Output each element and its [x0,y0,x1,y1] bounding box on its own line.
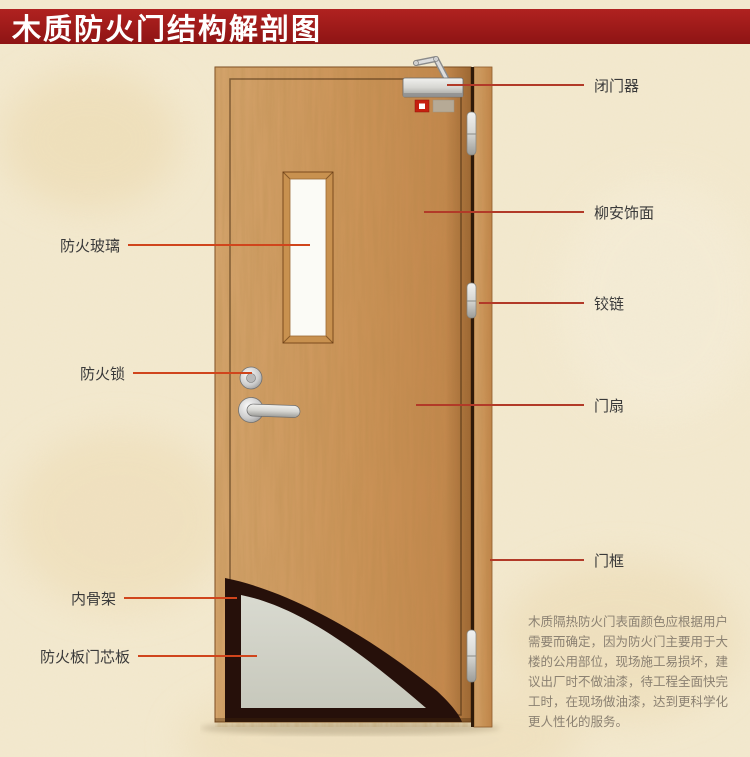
label-inner-skeleton-text: 内骨架 [71,588,116,609]
leader-line-door-frame [490,559,584,561]
label-door-frame: 门框 [490,551,624,569]
glass-window [283,172,333,343]
label-door-closer: 闭门器 [447,76,639,94]
label-fire-glass: 防火玻璃 [60,236,310,254]
hinge-top [467,112,476,155]
fire-glass-pane [290,179,326,336]
description-paragraph: 木质隔热防火门表面颜色应根据用户 需要而确定，因为防火门主要用于大 楼的公用部位… [528,612,746,732]
label-lauan-veneer-text: 柳安饰面 [594,202,654,223]
description-line: 议出厂时不做油漆，待工程全面快完 [528,672,746,692]
label-fire-board-core-text: 防火板门芯板 [40,646,130,667]
description-line: 木质隔热防火门表面颜色应根据用户 [528,612,746,632]
label-door-leaf-text: 门扇 [594,395,624,416]
gray-patch [433,100,454,112]
description-line: 工时，在现场做油漆，达到更科学化 [528,692,746,712]
page-title: 木质防火门结构解剖图 [12,6,322,48]
label-door-frame-text: 门框 [594,550,624,571]
label-fire-board-core: 防火板门芯板 [40,647,257,665]
label-fire-lock: 防火锁 [80,364,252,382]
leader-line-fire-board-core [138,655,257,657]
edge-shading [445,67,471,722]
leader-line-inner-skeleton [124,597,237,599]
leader-line-fire-glass [128,244,310,246]
label-door-closer-text: 闭门器 [594,75,639,96]
description-line: 楼的公用部位，现场施工易损坏，建 [528,652,746,672]
title-bar: 木质防火门结构解剖图 [0,9,750,44]
description-line: 需要而确定，因为防火门主要用于大 [528,632,746,652]
door-bottom-edge [215,718,471,722]
leader-line-door-closer [447,84,584,86]
red-badge [415,100,429,112]
label-hinge: 铰链 [479,294,624,312]
label-fire-glass-text: 防火玻璃 [60,235,120,256]
description-line: 更人性化的服务。 [528,712,746,732]
label-inner-skeleton: 内骨架 [71,589,237,607]
leader-line-hinge [479,302,584,304]
leader-line-door-leaf [416,404,584,406]
label-door-leaf: 门扇 [416,396,624,414]
label-lauan-veneer: 柳安饰面 [424,203,654,221]
page: 木质防火门结构解剖图 [0,0,750,757]
label-fire-lock-text: 防火锁 [80,363,125,384]
hinge-bottom [467,630,476,682]
label-hinge-text: 铰链 [594,293,624,314]
hinge-middle [467,283,476,318]
leader-line-fire-lock [133,372,252,374]
leader-line-lauan-veneer [424,211,584,213]
